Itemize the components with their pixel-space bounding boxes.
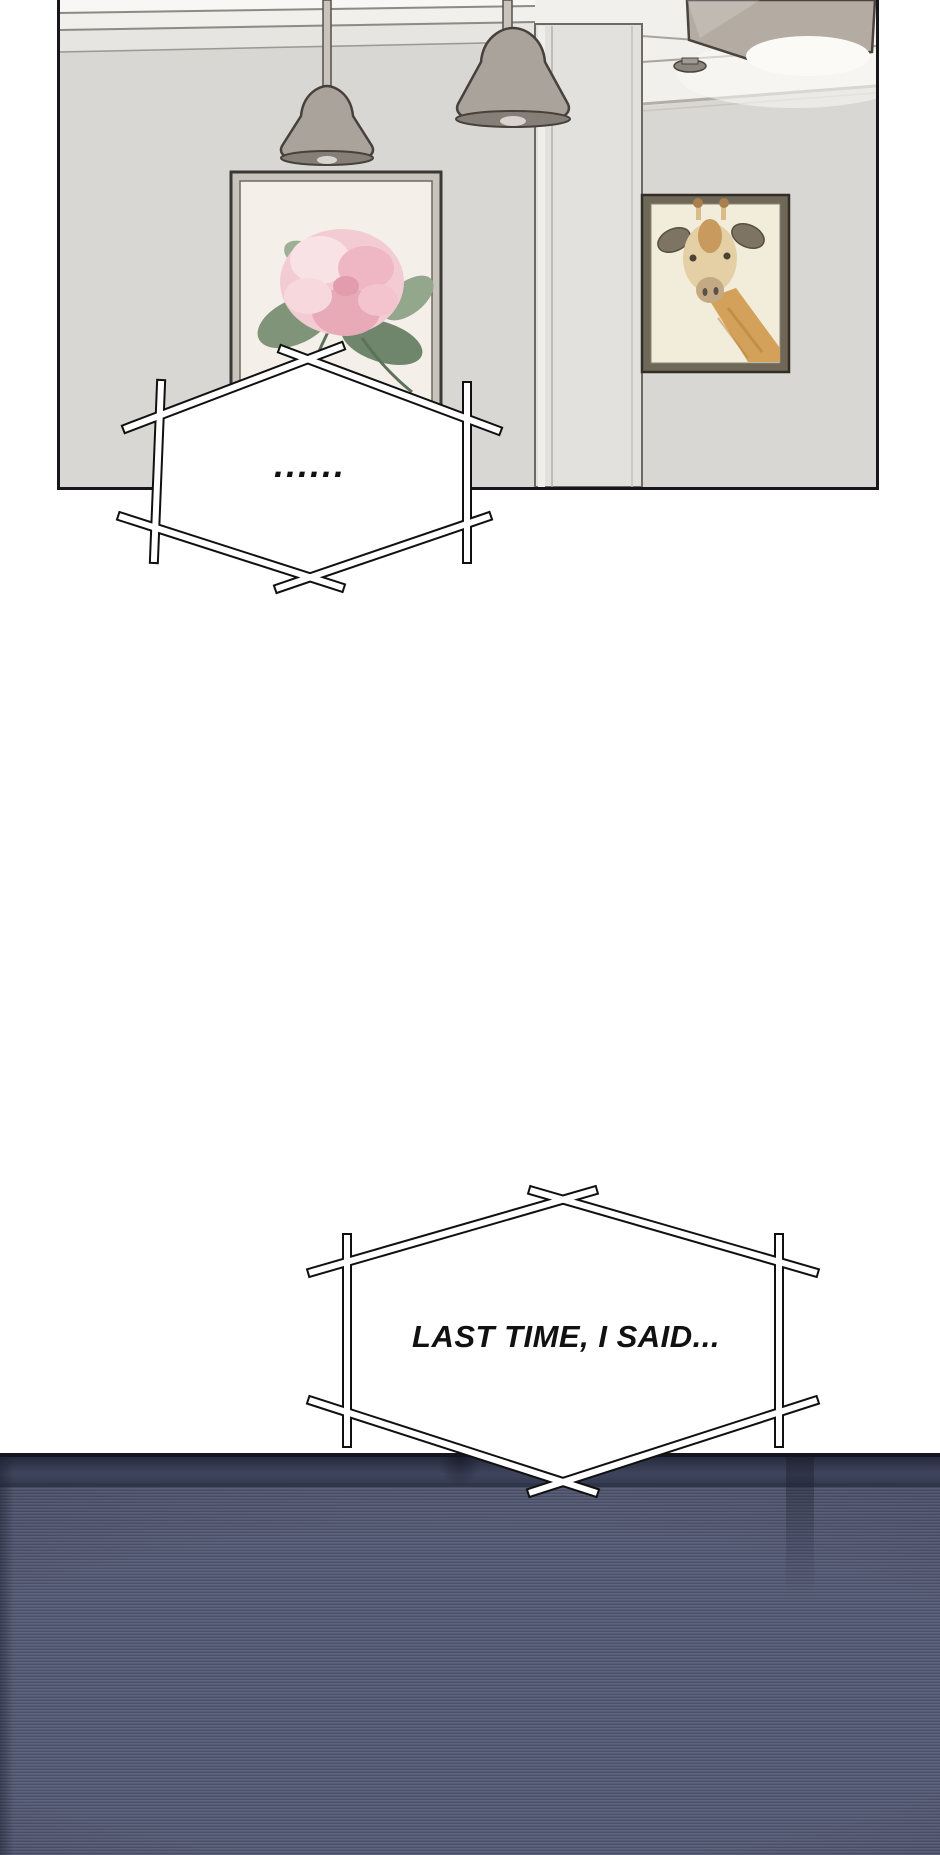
giraffe-photo xyxy=(642,195,789,372)
ceiling-left xyxy=(60,0,535,52)
room-scene xyxy=(60,0,876,487)
panel-gutter xyxy=(0,490,940,1453)
shadow-streak xyxy=(0,1457,14,1855)
room-panel xyxy=(57,0,879,490)
curtain-top-band xyxy=(0,1457,940,1487)
comic-page: ...... LAST TIME, I SAID... xyxy=(0,0,940,1855)
dark-panel xyxy=(0,1453,940,1855)
peony-painting xyxy=(231,172,441,435)
